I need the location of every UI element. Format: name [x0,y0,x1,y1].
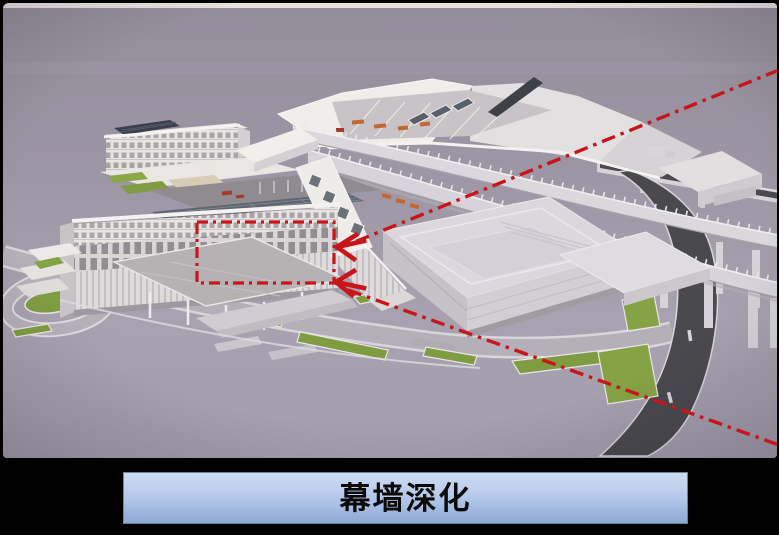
slide: { "frame": { "background_color": "#00000… [0,0,779,535]
architectural-render [3,3,777,458]
title-bar: 幕墙深化 [123,472,688,524]
page-title: 幕墙深化 [340,483,472,514]
render-canvas [3,3,777,458]
vignette [3,3,777,458]
